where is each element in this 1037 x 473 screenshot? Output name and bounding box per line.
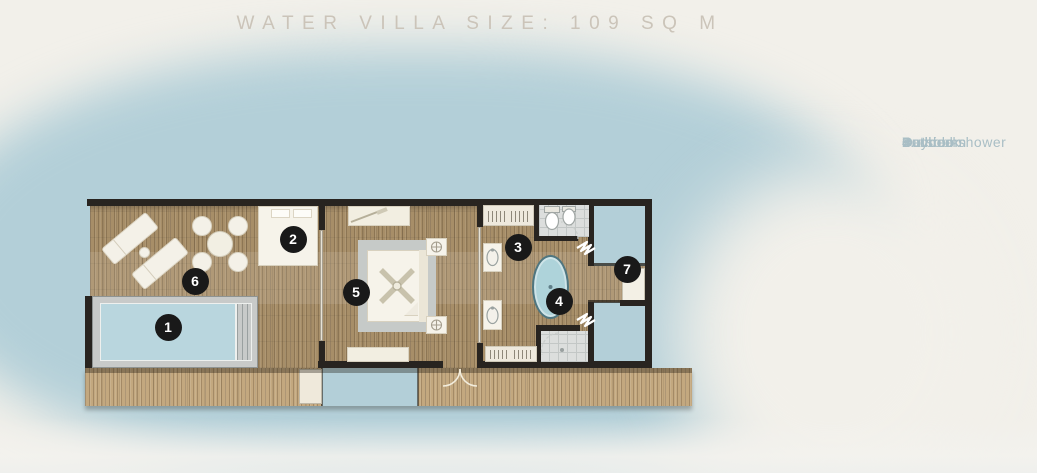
wall-pool-left	[85, 296, 92, 368]
doormat	[299, 369, 322, 404]
wall-divider1-top	[319, 204, 325, 230]
marker-sundeck: 6	[182, 268, 209, 295]
nightstand-bottom	[426, 316, 447, 334]
marker-bedroom: 5	[343, 279, 370, 306]
side-table	[139, 247, 150, 258]
daybed-pillow-right	[293, 209, 312, 218]
boardwalk-water-gap	[322, 368, 418, 406]
dining-table	[207, 231, 233, 257]
wall-courtyard-bottom	[588, 302, 594, 368]
toilet-room-wall-bottom	[534, 236, 578, 241]
sliding-door-bathroom	[478, 227, 481, 343]
wardrobe-top	[483, 205, 534, 226]
toilet-room-floor	[539, 205, 589, 237]
marker-pool: 1	[155, 314, 182, 341]
bench-top	[348, 206, 410, 226]
bench-bottom	[347, 347, 409, 362]
bed-headboard	[419, 250, 428, 322]
wardrobe-bottom	[485, 346, 537, 362]
pool-steps	[236, 303, 252, 361]
dining-chair	[192, 216, 212, 236]
vanity-sink-top	[483, 243, 502, 272]
sliding-door-bedroom	[320, 230, 323, 341]
dining-chair	[228, 216, 248, 236]
marker-daybed: 2	[280, 226, 307, 253]
bottom-white-fade	[0, 418, 1037, 473]
tray-wall	[620, 300, 647, 306]
wall-bottom-right	[477, 361, 652, 368]
marker-bath: 4	[546, 288, 573, 315]
wall-divider2-bottom	[477, 343, 483, 363]
villa-drop-shadow	[85, 368, 692, 373]
wall-bottom-left	[318, 361, 443, 368]
shower-room-floor	[540, 331, 588, 362]
wall-divider1-bottom	[319, 341, 325, 363]
vanity-sink-bottom	[483, 300, 502, 330]
gap-edge-right	[417, 368, 419, 406]
marker-outside-shower: 7	[614, 256, 641, 283]
daybed-pillow-left	[271, 209, 290, 218]
floorplan-page: WATER VILLA SIZE: 109 SQ M	[0, 0, 1037, 473]
wall-right	[645, 199, 652, 368]
shower-room-wall-top	[536, 325, 580, 331]
nightstand-top	[426, 238, 447, 256]
marker-bathroom: 3	[505, 234, 532, 261]
courtyard-bottom	[594, 302, 645, 361]
page-title: WATER VILLA SIZE: 109 SQ M	[160, 13, 800, 35]
dining-chair	[228, 252, 248, 272]
